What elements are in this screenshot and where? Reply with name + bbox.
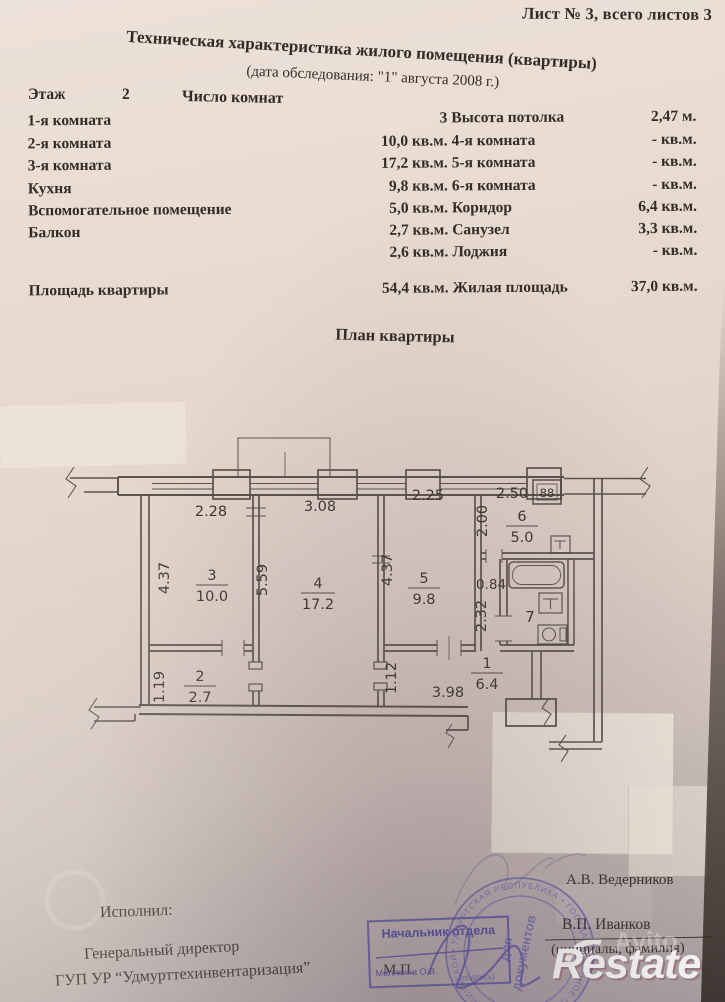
plan-fixtures xyxy=(509,480,570,644)
dimension: 0.84 xyxy=(476,577,506,593)
avito-pin-watermark xyxy=(47,872,103,928)
department-stamp: Начальник отдела Мелякина О.В. (подпись) xyxy=(367,916,511,989)
dimension: 3.08 xyxy=(304,499,336,515)
room-number: 7 xyxy=(525,608,535,626)
room-area: 17.2 xyxy=(302,597,334,613)
signatory-note: (инициалы, фамилия) xyxy=(551,940,685,959)
dimension: 2.28 xyxy=(195,504,227,520)
room-number: 2 xyxy=(195,669,204,685)
room-area: 9.8 xyxy=(412,592,435,608)
dimension: 4.37 xyxy=(157,562,173,594)
dimension: 5.59 xyxy=(255,564,271,596)
room-area: 5.0 xyxy=(510,530,533,546)
dimension: 2.25 xyxy=(412,488,444,504)
room-number: 4 xyxy=(313,576,322,592)
dimension: 1.12 xyxy=(384,662,400,694)
stove-label: 88 xyxy=(540,486,555,500)
dimension: 2.32 xyxy=(474,600,490,632)
dimension: 3.98 xyxy=(432,685,464,701)
dimension: 2.50 xyxy=(496,486,528,502)
room-area: 2.7 xyxy=(188,690,211,706)
room-area: 6.4 xyxy=(475,677,498,693)
dimension: 2.00 xyxy=(475,505,491,537)
dimension: 4.37 xyxy=(380,554,396,586)
signatory-name-top: А.В. Ведерников xyxy=(566,872,674,889)
scanned-document-photo: Лист № 3, всего листов 3 Техническая хар… xyxy=(0,0,725,1002)
executed-label: Исполнил: xyxy=(100,902,173,923)
floor-plan: 3 10.0 4 17.2 5 9.8 6 5.0 7 1 6.4 2 2.7 … xyxy=(0,0,725,1002)
room-area: 10.0 xyxy=(196,589,228,605)
stamp-title: Начальник отдела xyxy=(369,923,507,942)
room-number: 5 xyxy=(419,571,428,587)
room-number: 3 xyxy=(207,568,216,584)
signatory-name-mid: В.П. Иванков xyxy=(562,916,650,934)
dimension: 1.19 xyxy=(152,671,168,703)
stamp-note: (подпись) xyxy=(459,972,495,982)
room-number: 6 xyxy=(517,509,526,525)
room-number: 1 xyxy=(482,656,491,672)
stamp-name: Мелякина О.В. xyxy=(376,966,438,978)
